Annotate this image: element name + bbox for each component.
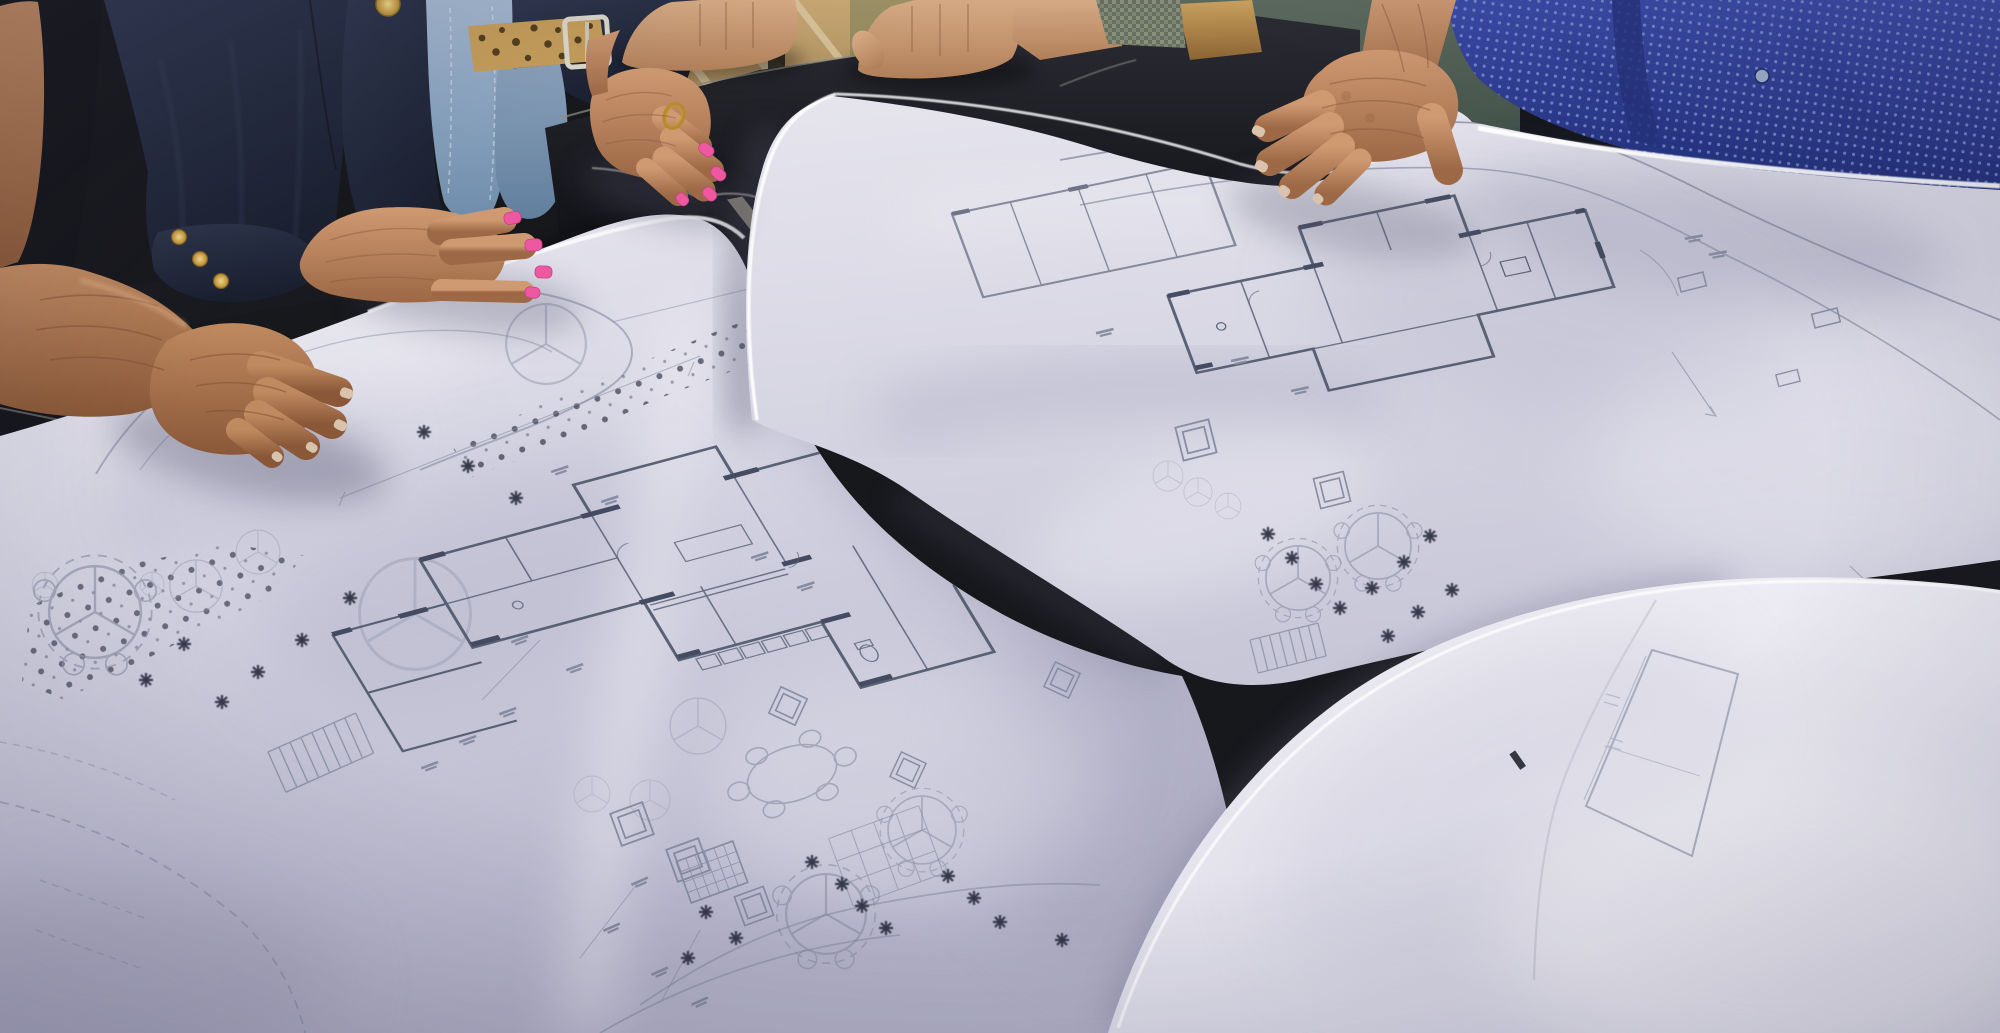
scene-svg [0,0,2000,1033]
photograph [0,0,2000,1033]
vignette [0,0,2000,1033]
